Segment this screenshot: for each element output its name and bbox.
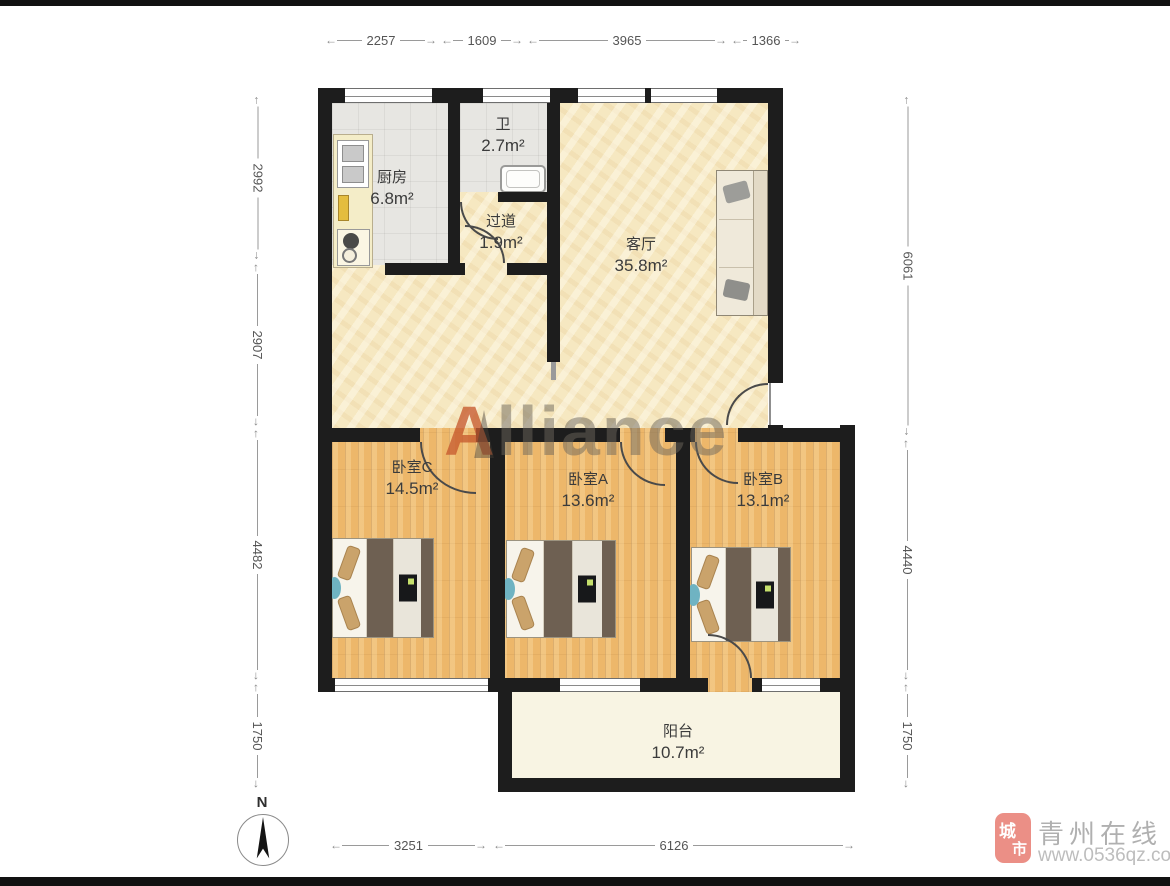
bed-icon: [332, 538, 434, 638]
pillow-icon: [511, 595, 536, 632]
top-border-bar: [0, 0, 1170, 6]
dimension-right-2: ←4440→: [901, 438, 915, 682]
wall-segment: [448, 103, 460, 275]
sofa-backrest: [753, 171, 767, 315]
sofa-pillow-icon: [722, 279, 750, 302]
window: [335, 678, 488, 692]
bed-icon: [691, 547, 791, 642]
dimension-top-2: ←1609→: [441, 33, 523, 47]
kitchen-counter-icon: [333, 134, 373, 268]
dimension-bottom-1: ←3251→: [330, 838, 487, 852]
site-branding: 城 市 青州在线 www.0536qz.com: [990, 806, 1170, 876]
room-label-hallway: 过道 1.9m²: [479, 212, 522, 254]
dimension-top-3: ←3965→: [527, 33, 727, 47]
dimension-top-1: ←2257→: [325, 33, 437, 47]
wall-segment: [448, 263, 465, 275]
wall-segment: [488, 678, 560, 692]
room-label-kitchen: 厨房 6.8m²: [370, 168, 413, 210]
pillow-icon: [337, 595, 362, 632]
wall-segment: [547, 103, 560, 362]
wall-segment: [498, 778, 855, 792]
wall-segment: [550, 88, 578, 103]
dimension-bottom-2: ←6126→: [493, 838, 855, 852]
dimension-left-4: ←1750→: [251, 682, 265, 790]
bathtub-icon: [500, 165, 546, 193]
floor-plan: 厨房 6.8m² 卫 2.7m² 过道 1.9m² 客厅 35.8m² 卧室C …: [0, 0, 1170, 886]
site-url: www.0536qz.com: [1038, 845, 1170, 867]
stove-icon: [337, 229, 370, 266]
dimension-right-3: ←1750→: [901, 682, 915, 790]
wall-segment: [432, 88, 483, 103]
window: [560, 678, 640, 692]
room-label-balcony: 阳台 10.7m²: [652, 722, 705, 764]
sink-icon: [337, 140, 369, 188]
compass-needle-icon: [250, 817, 276, 861]
sofa-pillow-icon: [722, 180, 751, 204]
wall-segment: [498, 692, 512, 792]
window: [483, 88, 550, 103]
compass-icon: N: [230, 794, 294, 870]
dimension-left-2: ←2907→: [251, 262, 265, 428]
wall-segment: [318, 88, 332, 692]
wall-segment: [318, 678, 335, 692]
window: [345, 88, 432, 103]
room-label-bedroom-c: 卧室C 14.5m²: [386, 458, 439, 500]
room-label-bedroom-b: 卧室B 13.1m²: [737, 470, 790, 512]
room-label-living: 客厅 35.8m²: [615, 235, 668, 277]
compass-circle: [237, 814, 289, 866]
tv-icon: [578, 576, 596, 603]
wall-segment: [738, 428, 855, 442]
pillow-icon: [696, 554, 721, 591]
wall-segment: [498, 192, 547, 202]
wall-segment: [507, 263, 560, 275]
wall-segment: [752, 678, 762, 692]
window-mullion: [645, 88, 651, 103]
site-logo-seal: 城 市: [995, 813, 1031, 863]
tv-icon: [399, 575, 417, 602]
wall-segment: [768, 88, 783, 383]
bed-icon: [506, 540, 616, 638]
north-label: N: [257, 794, 268, 811]
dimension-left-1: ←2992→: [252, 95, 266, 262]
appliance-icon: [338, 195, 349, 221]
window: [762, 678, 820, 692]
dimension-right-1: ←6061→: [902, 95, 916, 438]
sofa-icon: [716, 170, 768, 316]
wall-end-cap: [551, 362, 556, 380]
pillow-icon: [696, 599, 721, 636]
wall-segment: [840, 425, 855, 792]
wall-segment: [318, 428, 420, 442]
pillow-icon: [511, 547, 536, 584]
pillow-icon: [337, 545, 362, 582]
room-label-bathroom: 卫 2.7m²: [481, 115, 524, 157]
tv-icon: [756, 581, 774, 608]
room-label-bedroom-a: 卧室A 13.6m²: [562, 470, 615, 512]
bottom-border-bar: [0, 877, 1170, 886]
dimension-top-4: ←1366→: [731, 33, 801, 47]
wall-segment: [640, 678, 708, 692]
entry-door-leaf: [769, 383, 771, 425]
dimension-left-3: ←4482→: [251, 428, 265, 682]
